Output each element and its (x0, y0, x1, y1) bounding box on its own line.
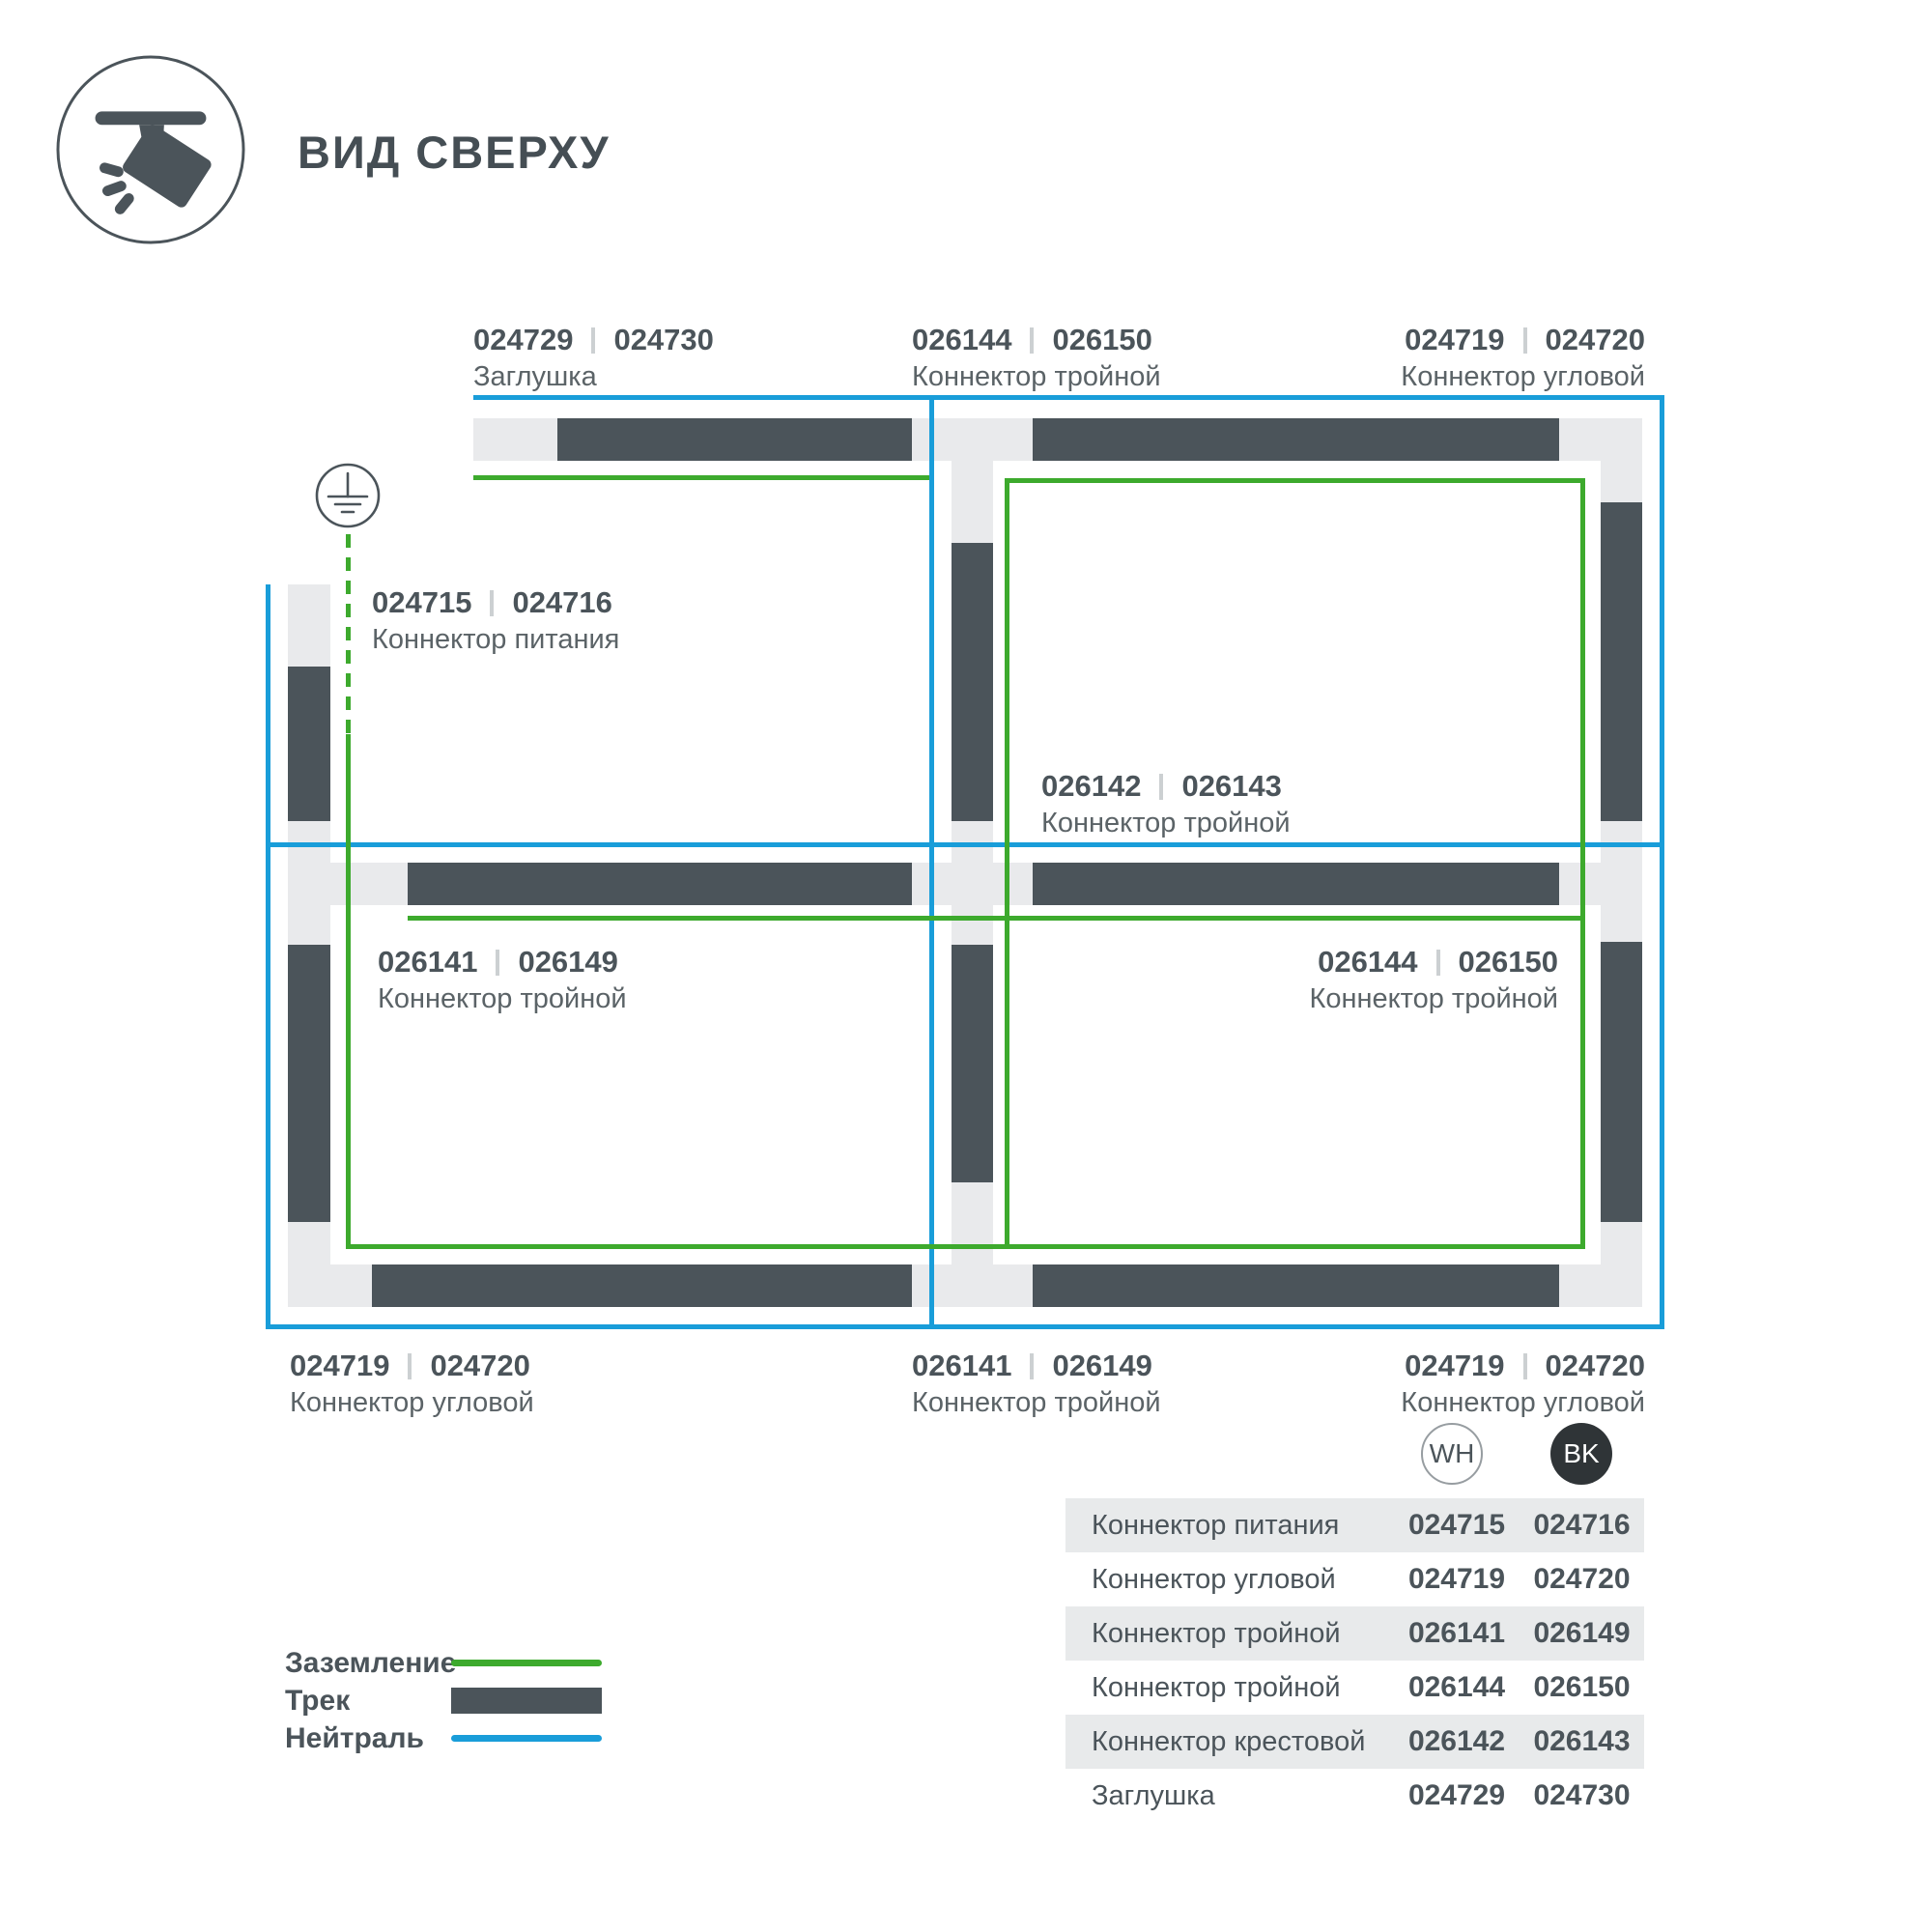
row-code-bk: 024716 (1520, 1509, 1644, 1542)
code-a: 026142 (1041, 771, 1141, 802)
divider (1030, 1353, 1034, 1379)
table-row: Заглушка 024729 024730 (1065, 1769, 1644, 1823)
track-segment (557, 418, 912, 461)
connector-name: Коннектор тройной (912, 1388, 1161, 1417)
earth-ground-icon (314, 462, 382, 529)
row-code-bk: 026149 (1520, 1617, 1644, 1650)
table-row: Коннектор питания 024715 024716 (1065, 1498, 1644, 1552)
neutral-line-top (473, 395, 1664, 400)
row-code-bk: 026150 (1520, 1671, 1644, 1704)
row-code-bk: 024730 (1520, 1779, 1644, 1812)
article-codes: 026141026149 (378, 947, 627, 978)
row-code-wh: 024715 (1394, 1509, 1520, 1542)
row-code-wh: 026141 (1394, 1617, 1520, 1650)
ground-line-bottom (348, 1244, 1584, 1249)
code-b: 026149 (518, 947, 617, 978)
connector-name: Заглушка (473, 362, 714, 391)
page-title: ВИД СВЕРХУ (298, 126, 611, 179)
row-name: Коннектор угловой (1065, 1564, 1394, 1596)
table-row: Коннектор тройной 026144 026150 (1065, 1661, 1644, 1715)
divider (1159, 774, 1163, 800)
color-badge-black: BK (1550, 1423, 1612, 1485)
code-a: 024719 (290, 1350, 389, 1381)
article-codes: 024729024730 (473, 325, 714, 355)
ground-line-left (346, 734, 351, 1249)
track-segment (408, 863, 912, 905)
row-name: Коннектор крестовой (1065, 1726, 1394, 1758)
article-codes: 024719024720 (1401, 1350, 1645, 1381)
track-segment (288, 667, 330, 821)
legend-swatch-track (451, 1688, 602, 1714)
track-spotlight-icon (55, 54, 246, 245)
code-b: 024720 (1546, 1350, 1645, 1381)
legend: Заземление Трек Нейтраль (285, 1644, 604, 1757)
label-triple-connector-mid-left: 026141026149 Коннектор тройной (378, 947, 627, 1013)
row-name: Коннектор тройной (1065, 1672, 1394, 1704)
connector-name: Коннектор тройной (1309, 984, 1558, 1013)
neutral-line-right (1660, 395, 1664, 1329)
ground-line-center (1005, 478, 1009, 1249)
connector-name: Коннектор тройной (1041, 809, 1291, 838)
row-code-wh: 024729 (1394, 1779, 1520, 1812)
label-power-connector: 024715024716 Коннектор питания (372, 587, 619, 654)
article-codes: 024715024716 (372, 587, 619, 618)
legend-item-track: Трек (285, 1682, 604, 1719)
legend-label: Трек (285, 1685, 451, 1718)
row-name: Коннектор тройной (1065, 1618, 1394, 1650)
connector-name: Коннектор угловой (1401, 1388, 1645, 1417)
row-code-bk: 026143 (1520, 1725, 1644, 1758)
code-b: 026149 (1052, 1350, 1151, 1381)
article-codes: 026144026150 (1309, 947, 1558, 978)
article-table: Коннектор питания 024715 024716 Коннекто… (1065, 1498, 1644, 1823)
code-a: 024719 (1405, 325, 1504, 355)
row-code-wh: 026144 (1394, 1671, 1520, 1704)
track-segment (288, 945, 330, 1222)
ground-line-top-left (473, 475, 929, 480)
label-corner-connector-bottom-right: 024719024720 Коннектор угловой (1401, 1350, 1645, 1417)
neutral-line-center (929, 395, 934, 1329)
page: ВИД СВЕРХУ 024729 (0, 0, 1932, 1932)
ground-line-mid (408, 916, 1584, 921)
neutral-line-left (266, 584, 270, 1329)
track-segment (1033, 1264, 1559, 1307)
row-name: Заглушка (1065, 1780, 1394, 1812)
article-codes: 026141026149 (912, 1350, 1161, 1381)
code-a: 026144 (912, 325, 1011, 355)
label-corner-connector-bottom-left: 024719024720 Коннектор угловой (290, 1350, 534, 1417)
row-code-wh: 024719 (1394, 1563, 1520, 1596)
track-segment (372, 1264, 912, 1307)
neutral-line-bottom (266, 1324, 1664, 1329)
code-a: 026141 (378, 947, 477, 978)
divider (1030, 327, 1034, 354)
code-a: 024729 (473, 325, 573, 355)
code-b: 026143 (1181, 771, 1281, 802)
track-segment (1601, 942, 1642, 1222)
legend-label: Заземление (285, 1647, 451, 1680)
divider (496, 950, 499, 976)
row-name: Коннектор питания (1065, 1510, 1394, 1542)
track-segment (952, 945, 993, 1182)
ground-feed-dashed-line (346, 534, 351, 734)
label-corner-connector-top-right: 024719024720 Коннектор угловой (1401, 325, 1645, 391)
row-code-bk: 024720 (1520, 1563, 1644, 1596)
track-segment (1033, 418, 1559, 461)
label-end-cap-top: 024729024730 Заглушка (473, 325, 714, 391)
table-row: Коннектор крестовой 026142 026143 (1065, 1715, 1644, 1769)
legend-label: Нейтраль (285, 1722, 451, 1755)
legend-swatch-ground (451, 1660, 602, 1666)
connector-name: Коннектор угловой (290, 1388, 534, 1417)
divider (408, 1353, 412, 1379)
code-b: 024716 (512, 587, 611, 618)
legend-item-ground: Заземление (285, 1644, 604, 1682)
divider (1436, 950, 1440, 976)
track-segment (1033, 863, 1559, 905)
track-segment (952, 543, 993, 821)
table-row: Коннектор угловой 024719 024720 (1065, 1552, 1644, 1606)
divider (591, 327, 595, 354)
article-codes: 024719024720 (290, 1350, 534, 1381)
table-row: Коннектор тройной 026141 026149 (1065, 1606, 1644, 1661)
code-a: 024719 (1405, 1350, 1504, 1381)
divider (1523, 327, 1527, 354)
ground-line-top-right (1007, 478, 1584, 483)
track-segment (1601, 502, 1642, 821)
label-triple-connector-bottom: 026141026149 Коннектор тройной (912, 1350, 1161, 1417)
neutral-line-mid (266, 842, 1664, 847)
legend-item-neutral: Нейтраль (285, 1719, 604, 1757)
legend-swatch-neutral (451, 1735, 602, 1742)
code-a: 024715 (372, 587, 471, 618)
article-codes: 024719024720 (1401, 325, 1645, 355)
code-b: 026150 (1052, 325, 1151, 355)
connector-name: Коннектор тройной (912, 362, 1161, 391)
connector-name: Коннектор тройной (378, 984, 627, 1013)
connector-name: Коннектор угловой (1401, 362, 1645, 391)
code-b: 024720 (1546, 325, 1645, 355)
connector-name: Коннектор питания (372, 625, 619, 654)
code-a: 026144 (1318, 947, 1417, 978)
code-b: 024720 (430, 1350, 529, 1381)
code-a: 026141 (912, 1350, 1011, 1381)
color-badge-white: WH (1421, 1423, 1483, 1485)
article-codes: 026144026150 (912, 325, 1161, 355)
divider (490, 590, 494, 616)
label-triple-connector-top: 026144026150 Коннектор тройной (912, 325, 1161, 391)
code-b: 026150 (1459, 947, 1558, 978)
code-b: 024730 (613, 325, 713, 355)
label-cross-connector: 026142026143 Коннектор тройной (1041, 771, 1291, 838)
article-codes: 026142026143 (1041, 771, 1291, 802)
ground-line-right (1580, 478, 1585, 1249)
label-triple-connector-mid-right: 026144026150 Коннектор тройной (1309, 947, 1558, 1013)
divider (1523, 1353, 1527, 1379)
row-code-wh: 026142 (1394, 1725, 1520, 1758)
